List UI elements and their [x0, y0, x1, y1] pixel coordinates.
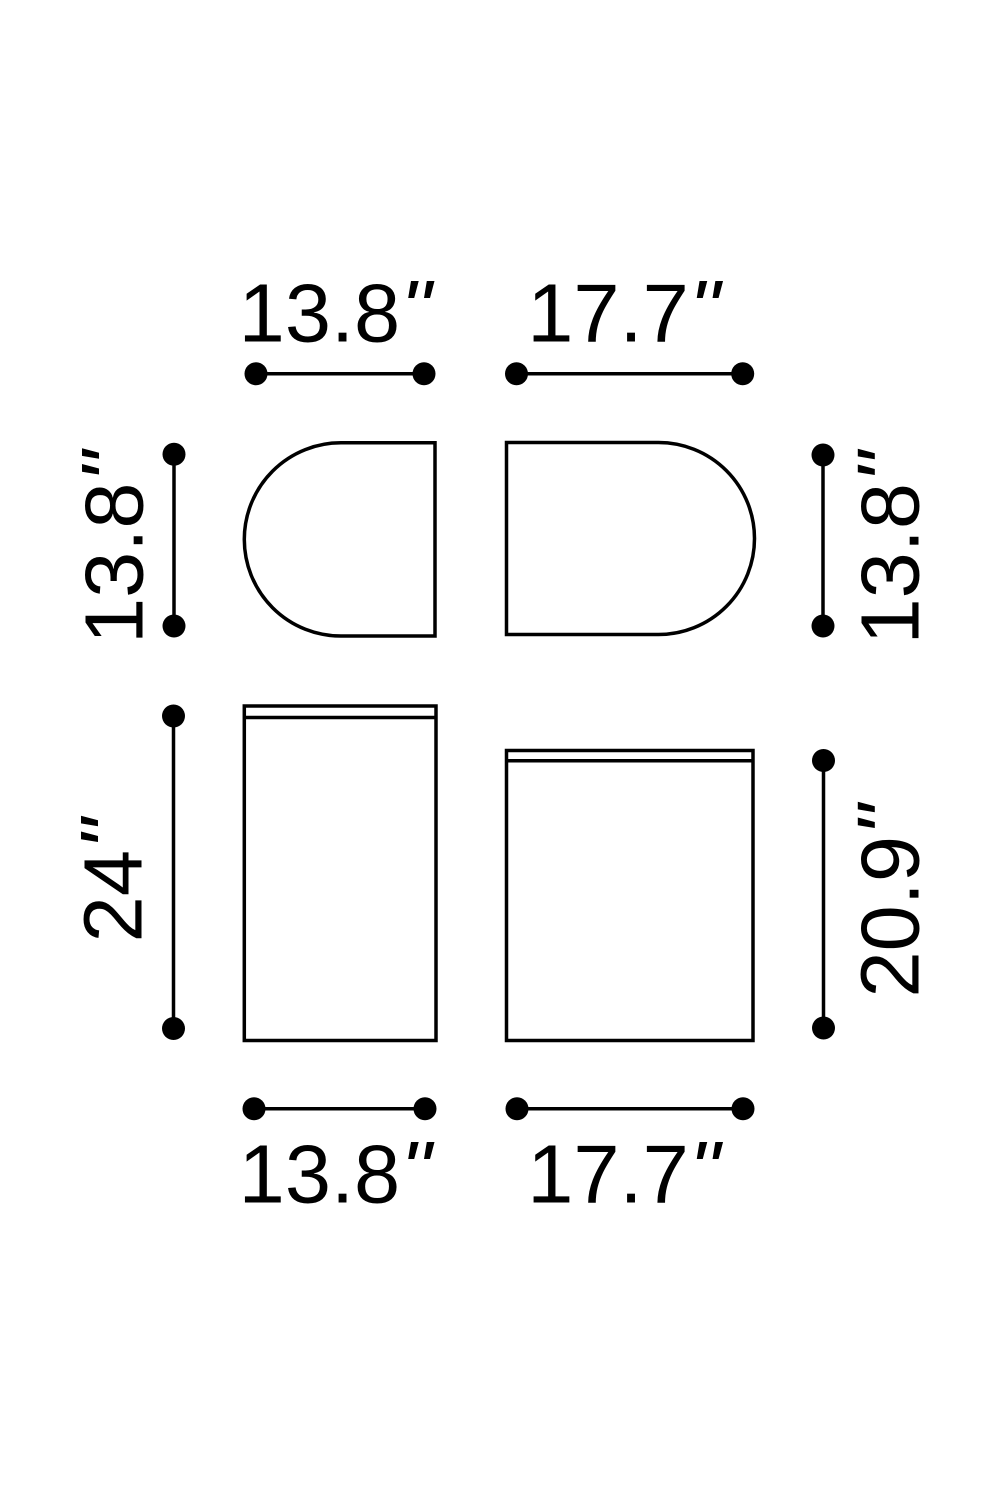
svg-text:20.9: 20.9	[843, 836, 936, 998]
svg-text:13.8: 13.8	[68, 483, 161, 645]
svg-text:17.7: 17.7	[527, 1128, 689, 1221]
svg-text:13.8: 13.8	[843, 483, 936, 645]
svg-text:13.8: 13.8	[239, 267, 401, 360]
svg-text:13.8: 13.8	[239, 1128, 401, 1221]
svg-text:17.7: 17.7	[527, 267, 689, 360]
svg-text:24: 24	[67, 850, 160, 942]
